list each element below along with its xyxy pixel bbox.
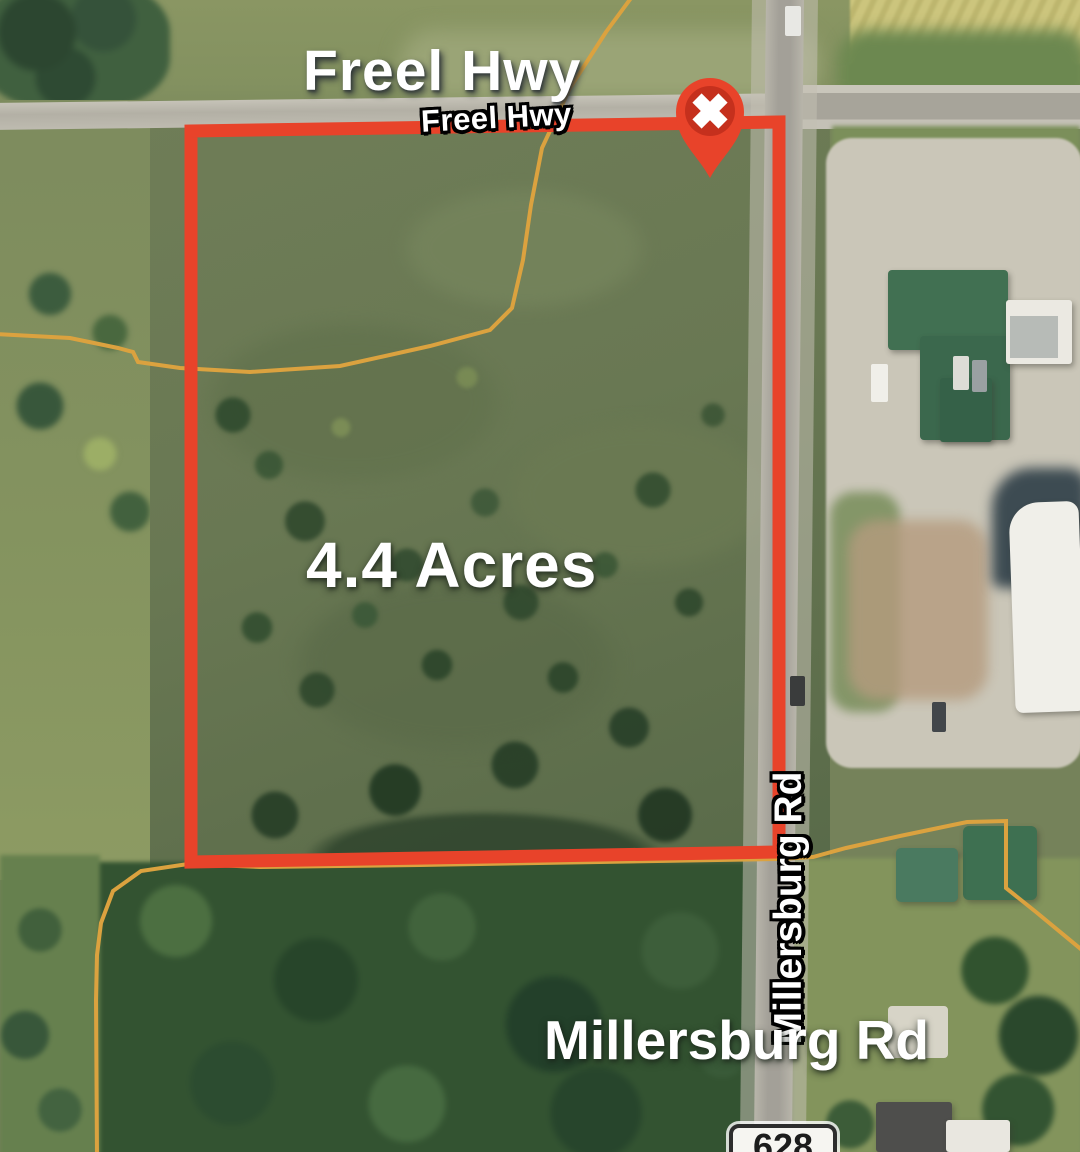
vehicle-2 [972,360,987,392]
building-green-house-west [896,848,958,902]
route-shield: 628 [729,1124,837,1152]
millersburg-rd-title: Millersburg Rd [544,1008,929,1072]
building-white-shed-roof [1010,316,1058,358]
vehicle-1 [953,356,969,390]
yard-dirt [848,520,988,700]
vehicle-4 [932,702,946,732]
building-green-house-east [963,826,1037,900]
terrain-forest [92,862,792,1152]
building-white-barn [1008,501,1080,713]
satellite-map[interactable]: Freel Hwy Freel Hwy 4.4 Acres Millersbur… [0,0,1080,1152]
terrain-topleft-trees [0,0,170,110]
terrain-left-bottom-grass [0,855,100,1152]
vehicle-on-road [790,676,805,706]
east-road [795,85,1080,129]
building-dark-roof-bottom [876,1102,952,1152]
vehicle-3 [871,364,888,402]
acreage-label: 4.4 Acres [306,528,597,602]
millersburg-rd-road-label: Millersburg Rd [767,771,811,1044]
vehicle-pickup-top [785,6,801,36]
page-title: Freel Hwy [303,38,581,104]
route-shield-number: 628 [753,1128,813,1152]
building-white-bottom [946,1120,1010,1152]
